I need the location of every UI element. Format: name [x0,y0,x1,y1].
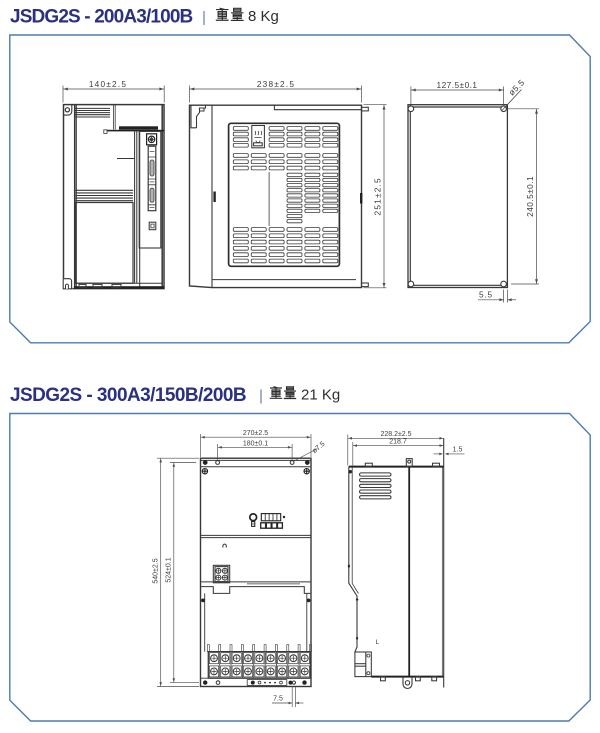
svg-text:180±0.1: 180±0.1 [243,440,268,447]
svg-text:21 Kg: 21 Kg [301,387,340,404]
svg-text:140±2.5: 140±2.5 [89,79,127,89]
svg-text:1.5: 1.5 [453,447,463,454]
svg-text:5.5: 5.5 [479,290,493,300]
svg-text:7.5: 7.5 [273,696,283,703]
svg-text:251±2.5: 251±2.5 [373,177,383,215]
svg-text:270±2.5: 270±2.5 [243,430,268,437]
svg-text:238±2.5: 238±2.5 [257,79,295,89]
svg-text:218.7: 218.7 [389,438,407,445]
svg-text:228.2±2.5: 228.2±2.5 [380,431,411,438]
svg-text:240.5±0.1: 240.5±0.1 [525,176,535,217]
svg-text:540±2.5: 540±2.5 [152,558,159,583]
svg-text:JSDG2S - 300A3/150B/200B: JSDG2S - 300A3/150B/200B [10,385,246,406]
svg-text:8 Kg: 8 Kg [248,8,279,25]
svg-text:524±0.1: 524±0.1 [165,557,172,582]
svg-text:L: L [376,639,380,646]
svg-text:127.5±0.1: 127.5±0.1 [437,80,478,90]
svg-text:ø7.5: ø7.5 [311,441,326,455]
svg-text:JSDG2S - 200A3/100B: JSDG2S - 200A3/100B [10,7,193,28]
